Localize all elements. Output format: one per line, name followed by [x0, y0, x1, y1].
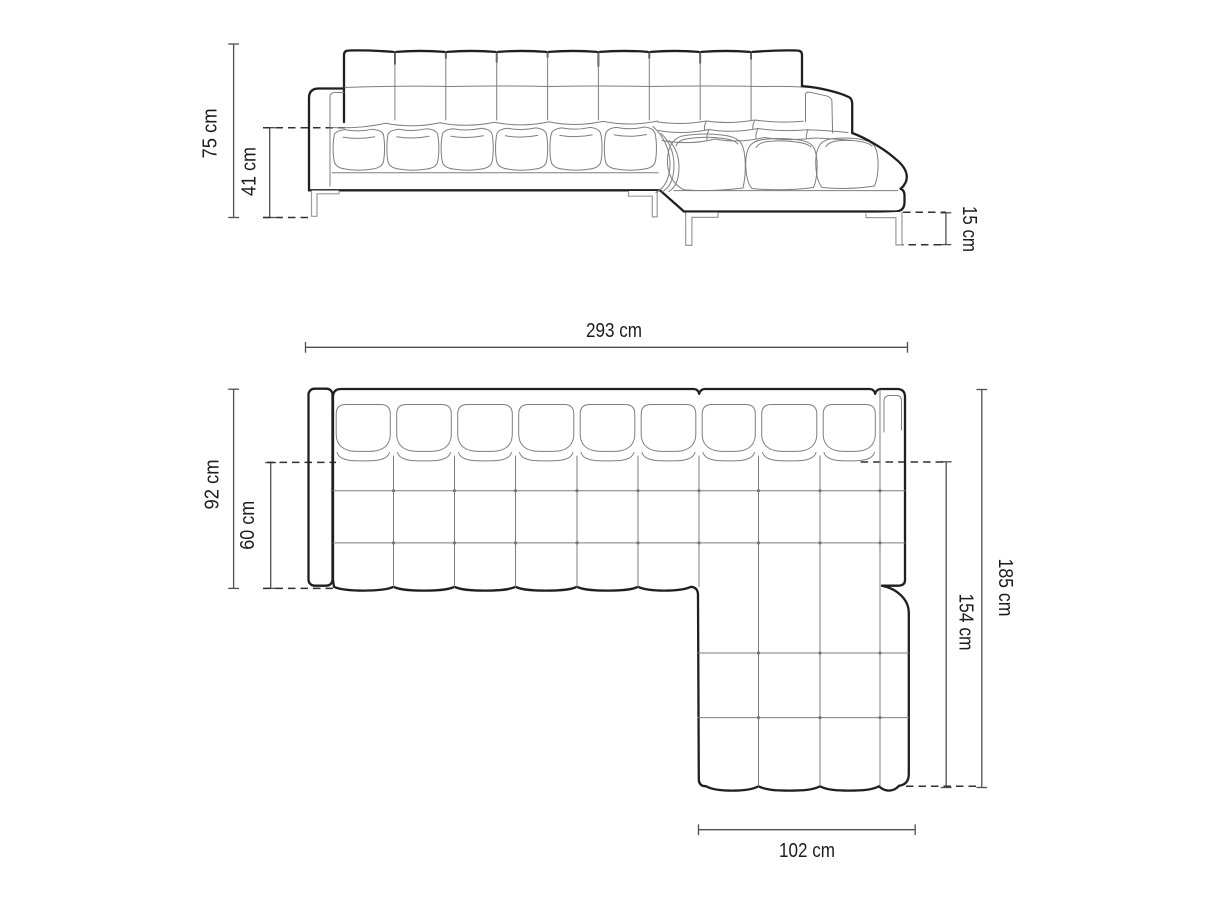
svg-text:15 cm: 15 cm — [958, 206, 980, 252]
svg-text:60 cm: 60 cm — [237, 501, 259, 550]
svg-text:293 cm: 293 cm — [586, 320, 642, 342]
svg-text:75 cm: 75 cm — [200, 109, 222, 159]
svg-text:185 cm: 185 cm — [994, 559, 1016, 617]
svg-text:41 cm: 41 cm — [238, 147, 260, 196]
svg-text:92 cm: 92 cm — [202, 460, 224, 510]
svg-text:102 cm: 102 cm — [779, 840, 835, 862]
svg-text:154 cm: 154 cm — [955, 594, 977, 651]
